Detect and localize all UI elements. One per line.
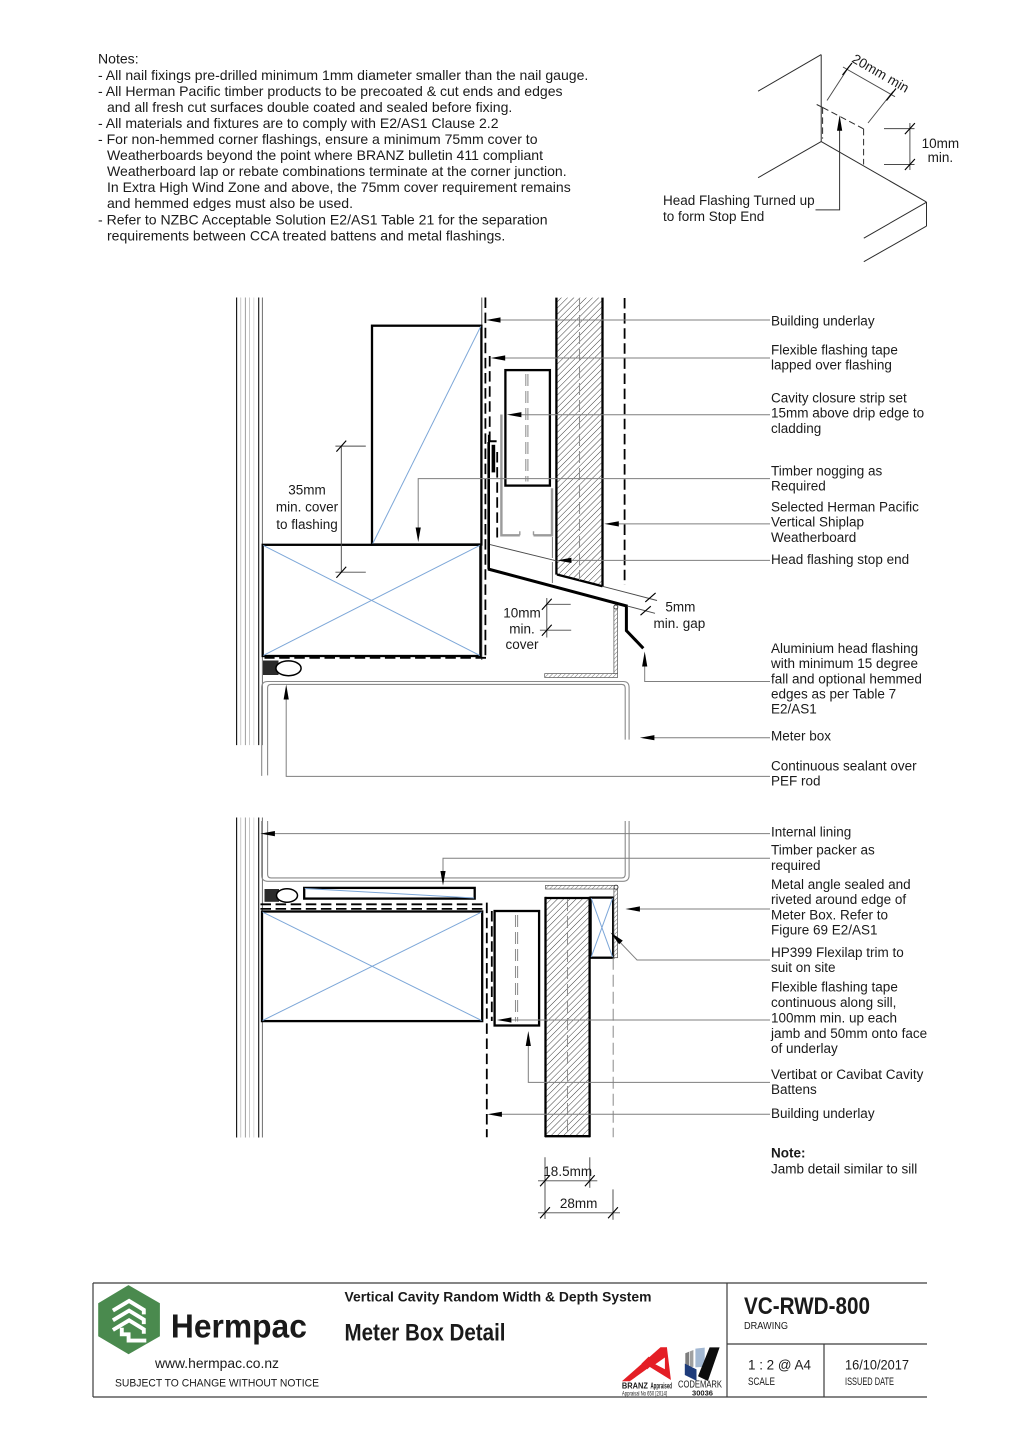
svg-text:Timber packer as: Timber packer as [771, 843, 875, 858]
svg-text:HP399 Flexilap trim to: HP399 Flexilap trim to [771, 945, 904, 960]
svg-text:edges as per Table 7: edges as per Table 7 [771, 686, 896, 701]
svg-text:Weatherboard: Weatherboard [771, 530, 856, 545]
svg-text:Flexible flashing tape: Flexible flashing tape [771, 980, 898, 995]
svg-text:16/10/2017: 16/10/2017 [845, 1358, 909, 1373]
svg-text:100mm min. up each: 100mm min. up each [771, 1010, 897, 1025]
svg-text:Meter Box. Refer to: Meter Box. Refer to [771, 907, 888, 922]
svg-text:- Refer to NZBC Acceptable Sol: - Refer to NZBC Acceptable Solution E2/A… [98, 211, 548, 227]
svg-text:Timber nogging as: Timber nogging as [771, 463, 883, 478]
svg-text:cladding: cladding [771, 421, 821, 436]
svg-text:PEF rod: PEF rod [771, 774, 821, 789]
svg-text:min. gap: min. gap [654, 616, 706, 631]
svg-text:lapped over flashing: lapped over flashing [771, 358, 892, 373]
svg-text:28mm: 28mm [560, 1196, 598, 1211]
svg-text:Appraised: Appraised [651, 1381, 673, 1391]
svg-text:jamb and 50mm onto face: jamb and 50mm onto face [770, 1026, 927, 1041]
svg-text:1 : 2 @ A4: 1 : 2 @ A4 [748, 1358, 811, 1373]
svg-text:- All Herman Pacific timber pr: - All Herman Pacific timber products to … [98, 83, 563, 99]
svg-text:to form Stop End: to form Stop End [663, 209, 764, 224]
svg-text:DRAWING: DRAWING [744, 1320, 788, 1332]
svg-text:to flashing: to flashing [276, 517, 338, 532]
svg-text:with minimum 15 degree: with minimum 15 degree [770, 656, 918, 671]
svg-text:Selected Herman Pacific: Selected Herman Pacific [771, 500, 919, 515]
svg-text:Meter box: Meter box [771, 729, 831, 744]
svg-text:Appraisal No 650 [2014]: Appraisal No 650 [2014] [622, 1391, 667, 1398]
svg-text:30036: 30036 [692, 1389, 713, 1398]
svg-text:Aluminium head flashing: Aluminium head flashing [771, 641, 918, 656]
svg-text:Vertical Shiplap: Vertical Shiplap [771, 515, 864, 530]
svg-text:Continuous sealant over: Continuous sealant over [771, 759, 917, 774]
svg-text:- For non-hemmed corner flashi: - For non-hemmed corner flashings, ensur… [98, 131, 538, 147]
svg-text:Note:: Note: [771, 1145, 806, 1160]
svg-text:Cavity closure strip set: Cavity closure strip set [771, 390, 907, 405]
svg-text:Weatherboard lap or rebate com: Weatherboard lap or rebate combinations … [107, 163, 567, 179]
svg-text:15mm above drip edge to: 15mm above drip edge to [771, 405, 924, 420]
svg-text:Notes:: Notes: [98, 51, 139, 67]
svg-text:cover: cover [505, 637, 539, 652]
svg-text:requirements between CCA treat: requirements between CCA treated battens… [107, 227, 505, 243]
svg-text:Flexible flashing tape: Flexible flashing tape [771, 342, 898, 357]
svg-text:required: required [771, 858, 821, 873]
svg-text:VC-RWD-800: VC-RWD-800 [744, 1293, 870, 1320]
svg-text:Hermpac: Hermpac [171, 1308, 307, 1345]
svg-text:SCALE: SCALE [748, 1376, 775, 1388]
svg-text:Head flashing stop end: Head flashing stop end [771, 552, 909, 567]
svg-text:www.hermpac.co.nz: www.hermpac.co.nz [154, 1355, 279, 1371]
svg-text:fall and optional hemmed: fall and optional hemmed [771, 671, 922, 686]
svg-text:Internal lining: Internal lining [771, 825, 851, 840]
svg-text:and hemmed edges must also be: and hemmed edges must also be used. [107, 195, 353, 211]
svg-text:BRANZ: BRANZ [622, 1381, 648, 1391]
svg-text:Meter Box Detail: Meter Box Detail [345, 1320, 506, 1347]
svg-text:of underlay: of underlay [771, 1041, 838, 1056]
svg-text:Head Flashing Turned up: Head Flashing Turned up [663, 193, 815, 208]
svg-text:min. cover: min. cover [276, 500, 339, 515]
svg-text:and all fresh cut surfaces dou: and all fresh cut surfaces double coated… [107, 99, 512, 115]
svg-text:Vertical Cavity Random Width &: Vertical Cavity Random Width & Depth Sys… [345, 1289, 652, 1305]
svg-text:min.: min. [509, 621, 535, 636]
svg-text:SUBJECT TO CHANGE WITHOUT NOTI: SUBJECT TO CHANGE WITHOUT NOTICE [115, 1378, 319, 1390]
svg-text:5mm: 5mm [665, 600, 695, 615]
svg-text:Figure 69 E2/AS1: Figure 69 E2/AS1 [771, 922, 878, 937]
svg-text:min.: min. [928, 150, 954, 165]
svg-text:Required: Required [771, 478, 826, 493]
svg-text:suit on site: suit on site [771, 960, 836, 975]
svg-text:10mm: 10mm [922, 136, 960, 151]
svg-text:- All nail fixings pre-drilled: - All nail fixings pre-drilled minimum 1… [98, 67, 588, 83]
svg-text:Building underlay: Building underlay [771, 314, 875, 329]
svg-text:Metal angle sealed and: Metal angle sealed and [771, 877, 911, 892]
svg-text:10mm: 10mm [503, 606, 541, 621]
svg-text:18.5mm: 18.5mm [543, 1164, 592, 1179]
svg-text:continuous along sill,: continuous along sill, [771, 995, 896, 1010]
svg-text:Vertibat or Cavibat Cavity: Vertibat or Cavibat Cavity [771, 1067, 924, 1082]
svg-text:Building underlay: Building underlay [771, 1106, 875, 1121]
svg-text:- All materials and fixtures a: - All materials and fixtures are to comp… [98, 115, 499, 131]
svg-text:ISSUED DATE: ISSUED DATE [845, 1376, 894, 1388]
svg-text:35mm: 35mm [288, 483, 326, 498]
svg-text:E2/AS1: E2/AS1 [771, 701, 817, 716]
svg-text:Battens: Battens [771, 1082, 817, 1097]
svg-text:Jamb detail similar to sill: Jamb detail similar to sill [771, 1162, 917, 1177]
svg-text:riveted around edge of: riveted around edge of [771, 892, 906, 907]
svg-text:Weatherboards beyond the point: Weatherboards beyond the point where BRA… [107, 147, 543, 163]
svg-text:In Extra High Wind Zone and ab: In Extra High Wind Zone and above, the 7… [107, 179, 571, 195]
